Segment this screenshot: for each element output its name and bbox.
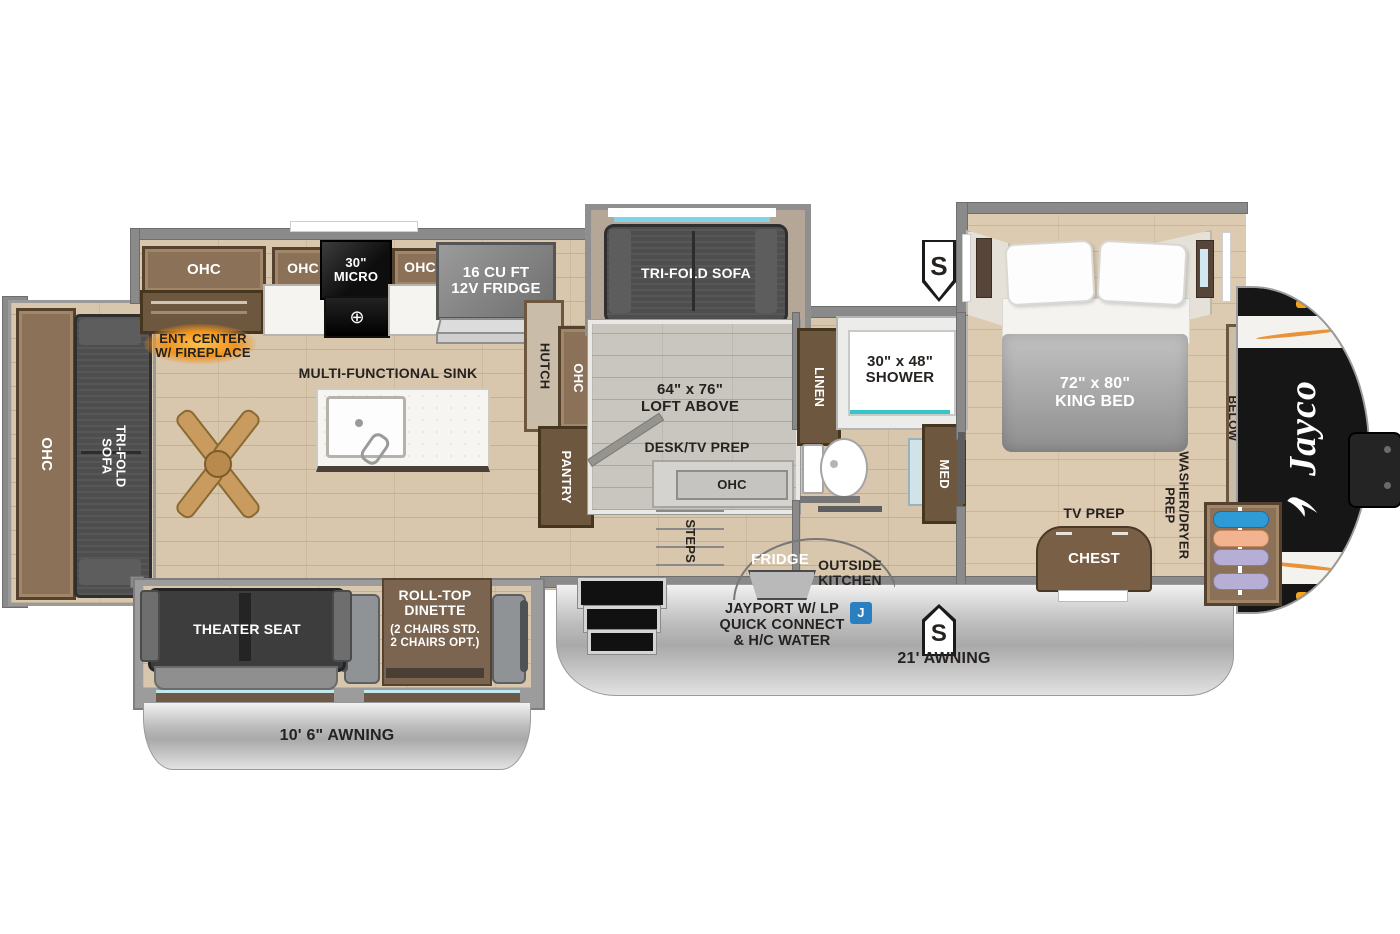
entry-steps (574, 578, 668, 656)
faucet-icon (358, 430, 393, 468)
microwave: 30" MICRO (320, 240, 392, 300)
sink-drain (355, 419, 363, 427)
wardrobe (1204, 502, 1282, 606)
rv-floorplan: OHC TRI-FOLD SOFA OHC ENT. CENTER W/ FIR… (0, 0, 1400, 934)
shower: 30" x 48" SHOWER (836, 316, 968, 430)
jayco-bird-icon (1286, 486, 1320, 520)
rear-ohc-cabinet: OHC (16, 308, 76, 600)
shower-glass (850, 410, 950, 414)
theater-armrest (140, 590, 160, 662)
shower-label: 30" x 48" SHOWER (846, 340, 954, 400)
theater-footrest (154, 666, 338, 690)
loft-ohc: OHC (676, 470, 788, 500)
washer-dryer-wrap: WASHER/DRYER PREP (1152, 438, 1200, 572)
bedroom-tv-panel (1196, 240, 1214, 298)
chair-back (520, 600, 528, 672)
speaker-badge-top: S (922, 240, 956, 302)
pillow (1096, 240, 1187, 307)
bed-label: 72" x 80" KING BED (1055, 375, 1135, 410)
rear-sofa-label: TRI-FOLD SOFA (99, 420, 128, 492)
shelf-line (151, 311, 247, 314)
cooktop: ⊕ (324, 296, 390, 338)
badge-j-letter: J (857, 606, 864, 620)
door-slab (818, 506, 882, 512)
ohc-label: OHC (404, 260, 436, 275)
toilet-bowl (820, 438, 868, 498)
chest-base (1058, 590, 1128, 602)
linen-cabinet: LINEN (797, 328, 841, 446)
speaker-badge-inner: S (925, 608, 953, 654)
hanger-blue (1213, 511, 1269, 528)
hanger-peach (1213, 530, 1269, 547)
dinette-chair-right (492, 594, 526, 684)
hutch-label: HUTCH (537, 343, 551, 390)
badge-s-letter: S (931, 621, 947, 647)
hanger-lavender (1213, 573, 1269, 590)
chest-handle (1112, 532, 1128, 535)
outside-fridge-label: FRIDGE (744, 552, 816, 569)
shelf-line (151, 301, 247, 304)
outside-kitchen-label: OUTSIDE KITCHEN (808, 558, 892, 589)
pantry-label: PANTRY (559, 450, 573, 503)
theater-body: THEATER SEAT (148, 588, 346, 672)
awning-left: 10' 6" AWNING (143, 702, 531, 770)
badge-s-letter: S (930, 252, 948, 281)
loft-label: 64" x 76" LOFT ABOVE (600, 382, 780, 415)
hanger-lavender (1213, 549, 1269, 566)
tv-prep-label: TV PREP (1034, 506, 1154, 521)
speaker-badge-inner: S (925, 242, 953, 298)
cap-top-black (1238, 288, 1368, 316)
marker-light (1314, 300, 1326, 308)
entry-step (578, 578, 666, 608)
desk-tv-prep-label: DESK/TV PREP (622, 440, 772, 455)
ohc-label: OHC (571, 363, 585, 393)
hitch-pin-box (1348, 432, 1400, 508)
dinette-label: ROLL-TOP DINETTE (386, 588, 484, 619)
steps-label-wrap: STEPS (670, 506, 710, 576)
toilet-icon (800, 432, 866, 502)
tv-screen (1200, 249, 1208, 287)
sofa-armrest (755, 229, 777, 313)
dinette-table: ROLL-TOP DINETTE (2 CHAIRS STD. 2 CHAIRS… (382, 578, 492, 686)
entry-step (584, 606, 660, 632)
pantry-cabinet: PANTRY (538, 426, 594, 528)
ohc-label: OHC (287, 261, 319, 276)
med-label: MED (937, 459, 951, 489)
sofa-armrest (609, 229, 631, 313)
marker-light (1314, 592, 1326, 600)
ent-center-label: ENT. CENTER W/ FIREPLACE (128, 332, 278, 361)
bedroom-window-right (1222, 232, 1231, 302)
jayport-badge: J (850, 602, 872, 624)
counter-right (388, 284, 442, 336)
island-sink (326, 396, 406, 458)
burner-icon: ⊕ (349, 308, 364, 326)
ohc-label: OHC (187, 262, 221, 279)
linen-label: LINEN (812, 367, 826, 407)
bedroom-side-panel (976, 238, 992, 298)
counter-left (263, 284, 327, 336)
chest-handle (1056, 532, 1072, 535)
chest: CHEST (1036, 526, 1152, 592)
bath-right-wall (956, 312, 966, 440)
awning-left-label: 10' 6" AWNING (280, 727, 395, 745)
rear-ohc-label: OHC (38, 437, 55, 471)
hitch-bolt (1384, 482, 1391, 489)
sofa-seam (692, 231, 695, 311)
brand-logo-text: Jayco (1281, 380, 1325, 476)
loft-slide-window-glass (614, 217, 770, 222)
outside-fridge-box (748, 570, 816, 600)
jayport-label: JAYPORT W/ LP QUICK CONNECT & H/C WATER (712, 602, 852, 650)
ohc-label: OHC (717, 478, 747, 492)
marker-light (1296, 592, 1308, 600)
brand-logo-wrap: Jayco (1281, 380, 1325, 520)
top-wall-bedroom (956, 202, 1248, 214)
bedroom-window-left (962, 234, 971, 302)
left-wall-stub (130, 228, 140, 304)
king-bed: 72" x 80" KING BED (1000, 238, 1190, 452)
bed-blanket: 72" x 80" KING BED (1002, 334, 1188, 452)
bath-right-wall-lower (956, 506, 966, 588)
chest-body: CHEST (1036, 526, 1152, 592)
marker-light (1296, 300, 1308, 308)
theater-seat: THEATER SEAT (148, 588, 344, 688)
cap-white-band (1238, 316, 1368, 348)
sink-label: MULTI-FUNCTIONAL SINK (283, 366, 493, 381)
kitchen-ohc-left: OHC (142, 246, 266, 294)
washer-dryer-label: WASHER/DRYER PREP (1162, 451, 1191, 559)
dinette-bench (386, 668, 484, 678)
slide-window (156, 690, 334, 702)
kitchen-window (290, 221, 418, 232)
bedroom-door-slab (958, 432, 965, 504)
slide-window (364, 690, 520, 702)
entry-step (588, 630, 656, 654)
interior-steps: STEPS (656, 506, 724, 576)
micro-label: 30" MICRO (334, 256, 378, 285)
toilet-flush (830, 460, 838, 468)
hitch-bolt (1384, 446, 1391, 453)
theater-label: THEATER SEAT (193, 622, 301, 637)
kitchen-island (316, 388, 490, 472)
loft-slide-window (608, 208, 776, 217)
chest-label: CHEST (1068, 551, 1120, 568)
cap-swoosh (1256, 328, 1342, 341)
fridge-label: 16 CU FT 12V FRIDGE (451, 265, 541, 298)
door-slab (800, 496, 860, 503)
awning-right-label: 21' AWNING (886, 650, 1002, 668)
dinette-note: (2 CHAIRS STD. 2 CHAIRS OPT.) (384, 624, 486, 649)
theater-armrest (332, 590, 352, 662)
fan-hub (204, 450, 232, 478)
pillow (1004, 240, 1095, 307)
loft-sofa-label: TRI-FOLD SOFA (641, 266, 751, 281)
loft-trifold-sofa: TRI-FOLD SOFA (604, 224, 788, 324)
steps-label: STEPS (683, 519, 697, 563)
